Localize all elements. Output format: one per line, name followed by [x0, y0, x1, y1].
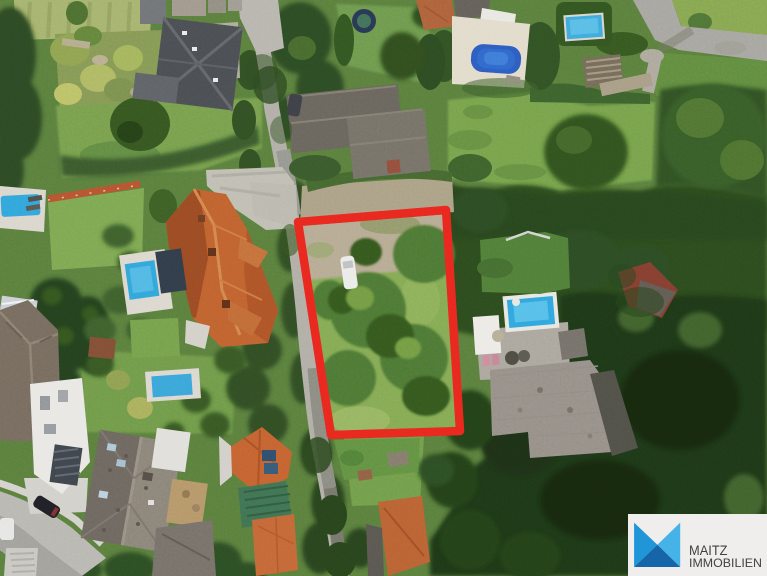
- svg-text:IMMOBILIEN: IMMOBILIEN: [689, 558, 762, 570]
- svg-text:MAITZ: MAITZ: [689, 542, 728, 558]
